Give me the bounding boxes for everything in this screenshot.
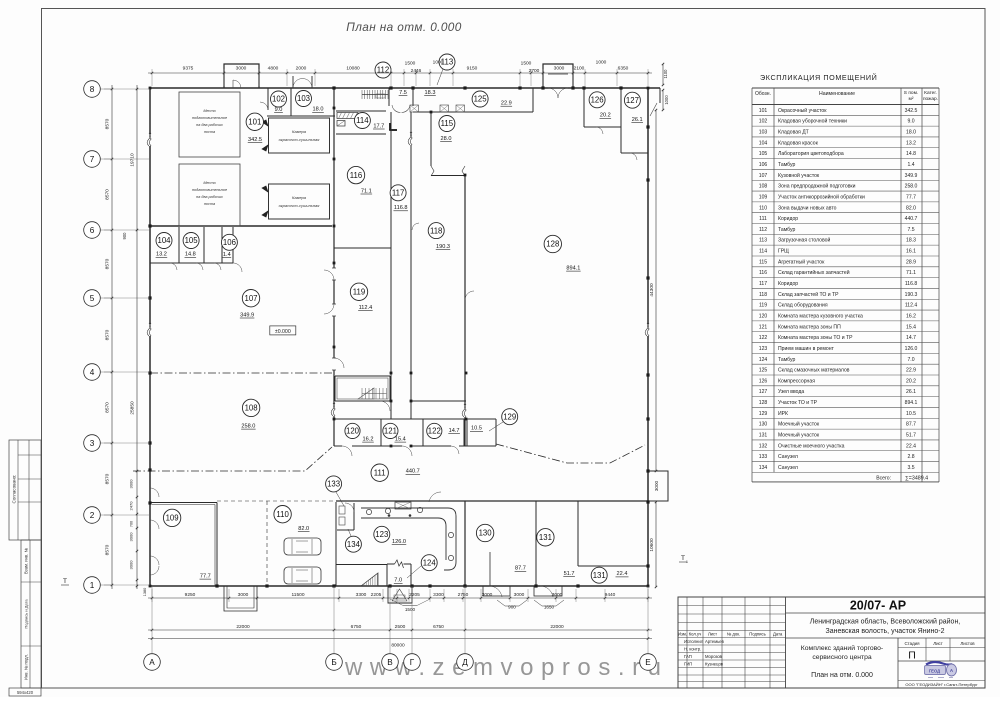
svg-text:1650: 1650: [544, 605, 555, 610]
svg-text:Подпись и Дата: Подпись и Дата: [24, 599, 29, 629]
svg-text:129: 129: [759, 411, 768, 417]
svg-text:102: 102: [272, 95, 285, 104]
svg-text:1.4: 1.4: [223, 252, 231, 258]
svg-text:116.8: 116.8: [394, 205, 408, 211]
svg-text:2000: 2000: [296, 66, 307, 72]
svg-text:Г: Г: [410, 658, 415, 667]
svg-text:124: 124: [759, 357, 768, 363]
svg-text:±0.000: ±0.000: [275, 329, 291, 335]
svg-text:Б: Б: [331, 658, 336, 667]
svg-text:ИРК: ИРК: [778, 411, 788, 417]
svg-text:105: 105: [185, 236, 199, 245]
svg-text:Коридор: Коридор: [778, 281, 798, 287]
svg-text:2100: 2100: [574, 66, 585, 72]
svg-text:1: 1: [686, 560, 688, 564]
svg-text:7.0: 7.0: [394, 578, 402, 584]
svg-text:Моечный участок: Моечный участок: [778, 432, 820, 439]
svg-text:Склад оборудования: Склад оборудования: [778, 303, 828, 309]
svg-text:22.4: 22.4: [906, 443, 916, 449]
svg-text:101: 101: [759, 108, 768, 114]
svg-text:Инв. № подл.: Инв. № подл.: [24, 654, 29, 680]
svg-text:Комплекс зданий торгово-: Комплекс зданий торгово-: [801, 644, 883, 652]
svg-text:№ док.: № док.: [727, 631, 740, 636]
svg-text:106: 106: [759, 162, 768, 168]
svg-text:107: 107: [759, 173, 768, 179]
svg-text:118: 118: [759, 292, 767, 298]
svg-text:19710: 19710: [130, 153, 136, 167]
svg-text:120: 120: [759, 313, 768, 319]
svg-text:16.1: 16.1: [906, 249, 916, 255]
svg-text:3000: 3000: [482, 592, 493, 598]
svg-text:18.3: 18.3: [906, 238, 916, 244]
svg-text:11500: 11500: [292, 592, 305, 598]
svg-text:16.2: 16.2: [906, 313, 916, 319]
svg-text:20.2: 20.2: [600, 113, 611, 119]
svg-text:258.0: 258.0: [905, 184, 918, 190]
svg-text:127: 127: [626, 96, 639, 105]
svg-text:6750: 6750: [351, 624, 362, 630]
svg-text:16.2: 16.2: [363, 436, 374, 442]
svg-text:10.5: 10.5: [471, 426, 482, 432]
svg-text:8570: 8570: [105, 473, 111, 484]
svg-text:Место: Место: [203, 109, 215, 113]
svg-text:3000: 3000: [552, 592, 563, 598]
svg-text:В: В: [387, 658, 393, 667]
svg-text:110: 110: [276, 510, 289, 519]
svg-text:28.0: 28.0: [441, 136, 452, 142]
svg-text:77.7: 77.7: [906, 194, 916, 200]
svg-text:109: 109: [759, 194, 768, 200]
svg-text:121: 121: [759, 324, 768, 330]
svg-text:Изм.: Изм.: [678, 631, 687, 636]
svg-text:125: 125: [474, 95, 488, 104]
svg-text:Лаборатория цветоподбора: Лаборатория цветоподбора: [778, 151, 844, 157]
svg-text:126.0: 126.0: [905, 346, 918, 352]
svg-text:Т: Т: [63, 578, 67, 585]
svg-text:10600: 10600: [649, 538, 655, 552]
svg-text:8570: 8570: [105, 258, 111, 269]
svg-text:Камера: Камера: [292, 195, 307, 200]
svg-text:Стадия: Стадия: [905, 641, 921, 646]
svg-text:Ленинградская область, Всеволо: Ленинградская область, Всеволожский райо…: [810, 618, 961, 626]
svg-text:14.7: 14.7: [449, 428, 460, 434]
svg-text:1100: 1100: [663, 69, 668, 79]
svg-text:Моечный участок: Моечный участок: [778, 421, 820, 428]
svg-text:2500: 2500: [395, 624, 406, 630]
svg-text:13.2: 13.2: [906, 140, 916, 146]
svg-text:Кол.уч: Кол.уч: [689, 631, 702, 636]
svg-text:124: 124: [423, 558, 437, 567]
svg-text:9150: 9150: [467, 66, 478, 72]
svg-text:2205: 2205: [409, 592, 420, 598]
svg-text:77.7: 77.7: [200, 573, 211, 579]
svg-text:Листов: Листов: [960, 641, 975, 646]
svg-text:51.7: 51.7: [564, 571, 575, 577]
svg-text:9375: 9375: [183, 66, 194, 72]
svg-text:349.9: 349.9: [905, 173, 918, 179]
svg-text:∑=3489.4: ∑=3489.4: [905, 476, 928, 482]
svg-text:Д: Д: [462, 658, 468, 667]
svg-text:Обозн.: Обозн.: [755, 91, 771, 97]
svg-text:4800: 4800: [268, 66, 279, 72]
svg-text:подготовительное: подготовительное: [192, 116, 227, 120]
svg-text:894.1: 894.1: [905, 400, 918, 406]
svg-text:71.1: 71.1: [361, 188, 372, 194]
svg-text:1380: 1380: [143, 588, 147, 596]
svg-text:Санузел: Санузел: [778, 465, 798, 471]
svg-text:8: 8: [90, 85, 95, 94]
svg-text:128: 128: [759, 400, 768, 406]
svg-text:117: 117: [759, 281, 767, 287]
svg-text:440.7: 440.7: [905, 216, 918, 222]
svg-text:Артемьев: Артемьев: [705, 639, 725, 644]
svg-text:Участок антикоррозийной обрабо: Участок антикоррозийной обработки: [778, 193, 865, 200]
svg-text:116: 116: [759, 270, 767, 276]
svg-text:Очистные моечного участка: Очистные моечного участка: [778, 443, 845, 449]
svg-text:3000: 3000: [129, 560, 134, 570]
svg-text:на два рабочих: на два рабочих: [196, 123, 224, 127]
svg-text:Место: Место: [203, 181, 215, 185]
svg-text:342.5: 342.5: [248, 137, 262, 143]
svg-text:112.4: 112.4: [905, 303, 918, 309]
svg-text:51.7: 51.7: [906, 433, 916, 439]
svg-text:2.8: 2.8: [907, 454, 914, 460]
svg-text:8570: 8570: [105, 544, 111, 555]
svg-text:8570: 8570: [105, 329, 111, 340]
svg-text:109: 109: [166, 514, 179, 523]
svg-text:Зона предпродажной подготовки: Зона предпродажной подготовки: [778, 183, 856, 190]
svg-text:104: 104: [759, 140, 768, 146]
svg-text:Исполнил: Исполнил: [684, 639, 704, 644]
svg-text:18.0: 18.0: [313, 107, 324, 113]
svg-text:ГИП: ГИП: [684, 661, 692, 666]
svg-text:114: 114: [759, 249, 767, 255]
svg-text:Тамбур: Тамбур: [778, 227, 795, 233]
svg-text:2750: 2750: [458, 592, 469, 598]
svg-text:Е: Е: [645, 658, 651, 667]
svg-text:127: 127: [759, 389, 768, 395]
svg-text:133: 133: [759, 454, 768, 460]
svg-text:подготовительное: подготовительное: [192, 188, 227, 192]
svg-text:1500: 1500: [405, 61, 416, 67]
svg-text:Н. контр.: Н. контр.: [684, 647, 701, 652]
svg-text:122: 122: [428, 427, 441, 436]
svg-text:190.3: 190.3: [436, 244, 450, 250]
svg-text:116: 116: [350, 171, 362, 180]
svg-text:2470: 2470: [129, 501, 134, 511]
svg-text:Морозов: Морозов: [705, 654, 723, 659]
svg-text:115: 115: [759, 259, 767, 265]
svg-text:130: 130: [479, 529, 493, 538]
svg-text:111: 111: [759, 216, 767, 222]
svg-text:3300: 3300: [433, 592, 444, 598]
svg-text:900: 900: [508, 605, 516, 610]
svg-text:22000: 22000: [236, 624, 250, 630]
svg-text:1000: 1000: [596, 60, 607, 66]
svg-text:Агрегатный участок: Агрегатный участок: [778, 258, 825, 265]
svg-text:106: 106: [223, 238, 236, 247]
svg-text:ООО "ГЕОДИЗАЙН" г.Санкт-Петерб: ООО "ГЕОДИЗАЙН" г.Санкт-Петербург: [905, 682, 978, 687]
svg-text:119: 119: [353, 288, 365, 297]
svg-text:7: 7: [90, 155, 95, 164]
svg-text:440.7: 440.7: [406, 469, 420, 475]
svg-text:123: 123: [375, 530, 388, 539]
svg-text:113: 113: [759, 238, 767, 244]
svg-text:128: 128: [546, 240, 559, 249]
svg-text:Кладовая ДТ: Кладовая ДТ: [778, 130, 809, 136]
svg-text:108: 108: [759, 184, 768, 190]
svg-text:Узел ввода: Узел ввода: [778, 389, 804, 395]
svg-text:190.3: 190.3: [905, 292, 918, 298]
svg-text:122: 122: [759, 335, 768, 341]
svg-text:103: 103: [297, 94, 310, 103]
svg-text:126.0: 126.0: [392, 539, 406, 545]
svg-text:134: 134: [347, 540, 361, 549]
svg-text:Комната мастера кузовного учас: Комната мастера кузовного участка: [778, 313, 863, 319]
svg-text:Загрузочная столовой: Загрузочная столовой: [778, 237, 830, 244]
svg-text:26.1: 26.1: [632, 117, 643, 123]
svg-text:14.8: 14.8: [906, 151, 916, 157]
svg-text:3000: 3000: [514, 592, 525, 598]
svg-text:Прием машин в ремонт: Прием машин в ремонт: [778, 346, 835, 352]
svg-text:Компрессорная: Компрессорная: [778, 378, 815, 384]
svg-text:123: 123: [759, 346, 768, 352]
svg-text:ГЕОД: ГЕОД: [929, 669, 940, 674]
svg-text:ГАП: ГАП: [684, 654, 692, 659]
svg-text:87.7: 87.7: [906, 422, 916, 428]
svg-text:108: 108: [245, 404, 258, 413]
svg-text:П: П: [908, 650, 916, 662]
svg-text:15.4: 15.4: [906, 324, 916, 330]
svg-text:Склад запчастей ТО и ТР: Склад запчастей ТО и ТР: [778, 291, 839, 298]
svg-text:105: 105: [759, 151, 768, 157]
svg-text:20.2: 20.2: [906, 378, 916, 384]
svg-text:Склад гарантийных запчастей: Склад гарантийных запчастей: [778, 269, 850, 276]
svg-text:110: 110: [759, 205, 767, 211]
svg-text:Взам. инв. №: Взам. инв. №: [24, 548, 29, 574]
svg-text:22.4: 22.4: [617, 571, 628, 577]
svg-text:3000: 3000: [129, 532, 134, 542]
svg-text:10080: 10080: [346, 66, 360, 72]
svg-text:Камера: Камера: [292, 129, 307, 134]
svg-text:894.1: 894.1: [566, 265, 580, 271]
svg-text:5: 5: [90, 294, 95, 303]
svg-text:126: 126: [591, 96, 604, 105]
svg-text:S пом.: S пом.: [904, 90, 918, 96]
svg-text:Кладовая красок: Кладовая красок: [778, 140, 819, 146]
svg-text:129: 129: [503, 412, 516, 421]
svg-text:112: 112: [377, 66, 389, 75]
svg-text:План на отм. 0.000: План на отм. 0.000: [346, 20, 462, 34]
svg-text:ГРЩ: ГРЩ: [778, 249, 789, 255]
svg-text:120: 120: [346, 427, 360, 436]
svg-text:26.1: 26.1: [906, 389, 916, 395]
svg-text:на два рабочих: на два рабочих: [196, 195, 224, 199]
svg-text:Тамбур: Тамбур: [778, 357, 795, 363]
svg-text:82.0: 82.0: [298, 526, 309, 532]
svg-text:8570: 8570: [105, 118, 111, 129]
svg-text:Тамбур: Тамбур: [778, 162, 795, 168]
svg-text:6350: 6350: [618, 66, 629, 72]
svg-text:1000: 1000: [433, 60, 444, 66]
svg-text:87.7: 87.7: [515, 566, 526, 572]
svg-text:3300: 3300: [356, 592, 367, 598]
svg-text:130: 130: [759, 422, 768, 428]
svg-text:1500: 1500: [405, 607, 416, 612]
svg-text:3: 3: [90, 439, 95, 448]
svg-text:Участок ТО и ТР: Участок ТО и ТР: [778, 400, 818, 406]
svg-text:131: 131: [759, 433, 768, 439]
svg-text:115: 115: [441, 119, 454, 128]
svg-text:А: А: [149, 658, 155, 667]
svg-text:700: 700: [130, 521, 134, 527]
svg-text:3000: 3000: [238, 592, 249, 598]
svg-text:Заневская волость, участок Яни: Заневская волость, участок Янино-2: [826, 628, 945, 635]
svg-text:Кладовая уборочной техники: Кладовая уборочной техники: [778, 118, 847, 125]
svg-text:сервисного центра: сервисного центра: [812, 654, 872, 661]
svg-text:133: 133: [327, 480, 340, 489]
svg-text:103: 103: [759, 130, 768, 136]
svg-text:13.2: 13.2: [156, 252, 167, 258]
svg-text:17.7: 17.7: [373, 123, 384, 129]
svg-text:Коридор: Коридор: [778, 216, 798, 222]
svg-text:2446: 2446: [411, 68, 422, 74]
svg-text:8570: 8570: [105, 402, 111, 413]
svg-text:6: 6: [90, 226, 95, 235]
svg-text:1.4: 1.4: [907, 162, 914, 168]
svg-text:м²: м²: [909, 96, 914, 102]
svg-text:окрасочно-сушильная: окрасочно-сушильная: [279, 203, 321, 208]
svg-text:Т: Т: [681, 555, 685, 562]
svg-text:Зона выдачи новых авто: Зона выдачи новых авто: [778, 205, 837, 211]
svg-text:Комната мастера зоны ПП: Комната мастера зоны ПП: [778, 324, 841, 330]
svg-text:Согласовано:: Согласовано:: [12, 475, 17, 504]
svg-text:2: 2: [90, 511, 95, 520]
svg-text:ЭКСПЛИКАЦИЯ ПОМЕЩЕНИЙ: ЭКСПЛИКАЦИЯ ПОМЕЩЕНИЙ: [760, 73, 877, 82]
svg-text:102: 102: [759, 119, 768, 125]
svg-text:4: 4: [90, 368, 95, 377]
svg-text:14.8: 14.8: [185, 252, 196, 258]
svg-text:258.0: 258.0: [241, 423, 255, 429]
svg-text:Всего:: Всего:: [876, 476, 891, 482]
svg-text:80000: 80000: [391, 643, 405, 649]
svg-text:2205: 2205: [371, 592, 382, 598]
svg-text:3000: 3000: [129, 479, 134, 489]
svg-text:116.8: 116.8: [905, 281, 918, 287]
svg-text:132: 132: [759, 443, 768, 449]
svg-text:22000: 22000: [550, 624, 564, 630]
svg-text:117: 117: [392, 189, 404, 198]
svg-text:119: 119: [759, 303, 767, 309]
svg-text:1: 1: [90, 581, 95, 590]
svg-text:349.9: 349.9: [240, 312, 254, 318]
svg-text:25850: 25850: [130, 401, 136, 415]
svg-text:900: 900: [122, 232, 127, 240]
svg-text:поста: поста: [204, 202, 215, 206]
svg-text:22.9: 22.9: [906, 368, 916, 374]
svg-text:10.5: 10.5: [906, 411, 916, 417]
svg-text:Кузнецов: Кузнецов: [705, 661, 724, 666]
svg-text:9440: 9440: [605, 592, 616, 598]
svg-text:131: 131: [593, 571, 606, 580]
svg-text:22.9: 22.9: [501, 101, 512, 107]
svg-text:Санузел: Санузел: [778, 454, 798, 460]
svg-text:поста: поста: [204, 130, 215, 134]
svg-text:Катег.: Катег.: [924, 90, 937, 96]
svg-text:121: 121: [384, 427, 397, 436]
svg-text:Подпись: Подпись: [749, 631, 766, 636]
svg-text:2700: 2700: [529, 68, 540, 74]
svg-text:126: 126: [759, 378, 768, 384]
svg-text:3.5: 3.5: [907, 465, 914, 471]
svg-text:Лист: Лист: [708, 631, 717, 636]
svg-text:107: 107: [244, 294, 257, 303]
svg-text:пожар.: пожар.: [923, 97, 938, 102]
svg-text:342.5: 342.5: [905, 108, 918, 114]
svg-text:111: 111: [374, 468, 386, 477]
svg-text:101: 101: [248, 118, 261, 127]
svg-text:104: 104: [157, 236, 171, 245]
svg-text:18.3: 18.3: [425, 90, 436, 96]
svg-text:28.9: 28.9: [906, 259, 916, 265]
svg-text:7.5: 7.5: [907, 227, 914, 233]
svg-text:44300: 44300: [649, 283, 655, 297]
svg-text:114: 114: [356, 116, 369, 125]
svg-text:Кузовной участок: Кузовной участок: [778, 172, 820, 179]
svg-text:71.1: 71.1: [906, 270, 916, 276]
svg-text:3000: 3000: [654, 480, 659, 491]
svg-text:112.4: 112.4: [359, 305, 373, 311]
svg-text:112: 112: [759, 227, 767, 233]
svg-text:Наименование: Наименование: [819, 91, 855, 97]
svg-text:20/07- АР: 20/07- АР: [850, 599, 906, 613]
svg-text:134: 134: [759, 465, 768, 471]
svg-text:9.0: 9.0: [907, 119, 914, 125]
svg-text:Дата: Дата: [773, 631, 783, 636]
svg-text:3000: 3000: [554, 66, 565, 72]
svg-text:125: 125: [759, 368, 768, 374]
svg-text:План на отм. 0.000: План на отм. 0.000: [811, 672, 873, 679]
svg-text:1000: 1000: [664, 95, 669, 105]
svg-text:131: 131: [539, 533, 552, 542]
svg-text:18.0: 18.0: [906, 130, 916, 136]
svg-text:3000: 3000: [236, 66, 247, 72]
svg-text:7.0: 7.0: [907, 357, 914, 363]
svg-text:7.5: 7.5: [399, 90, 407, 96]
svg-text:82.0: 82.0: [906, 205, 916, 211]
svg-text:Лист: Лист: [933, 641, 943, 646]
svg-text:Комната мастера зоны ТО и ТР: Комната мастера зоны ТО и ТР: [778, 335, 853, 341]
svg-text:594x420: 594x420: [17, 690, 34, 695]
svg-text:9250: 9250: [185, 592, 196, 598]
svg-text:14.7: 14.7: [906, 335, 916, 341]
svg-text:8570: 8570: [105, 189, 111, 200]
svg-text:6750: 6750: [433, 624, 444, 630]
svg-text:Склад смазочных материалов: Склад смазочных материалов: [778, 368, 850, 374]
svg-text:15.4: 15.4: [395, 436, 406, 442]
svg-text:Окрасочный участок: Окрасочный участок: [778, 107, 827, 114]
svg-text:118: 118: [430, 226, 442, 235]
svg-text:окрасочно-сушильная: окрасочно-сушильная: [279, 137, 321, 142]
svg-text:9.0: 9.0: [275, 107, 283, 113]
svg-text:1500: 1500: [521, 61, 532, 67]
